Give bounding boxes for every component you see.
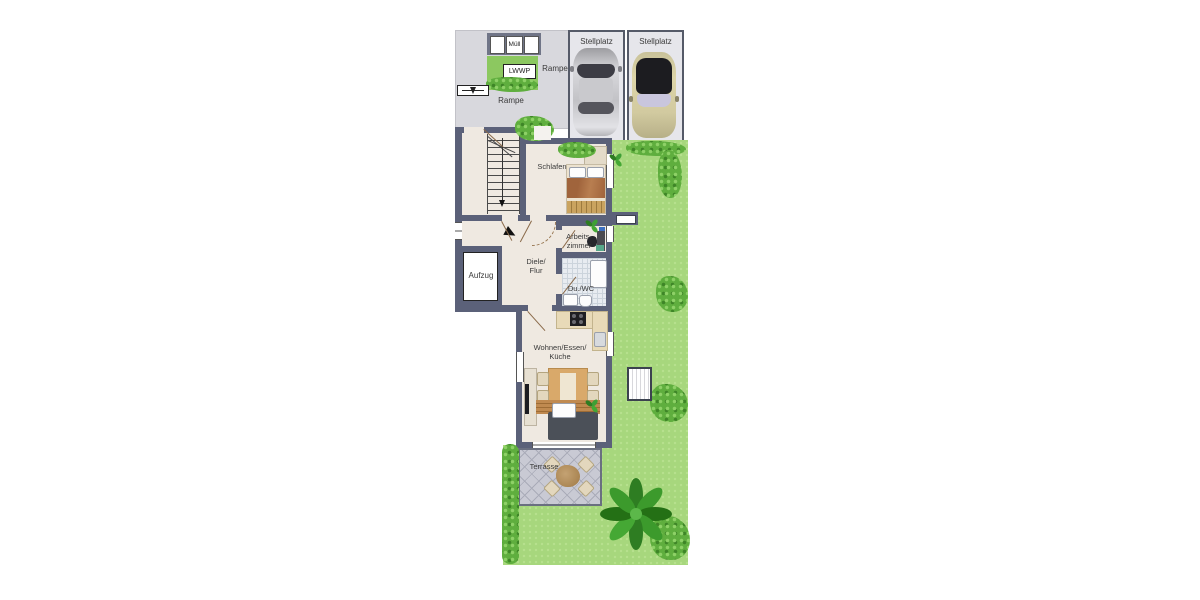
car-champagne-roof (636, 58, 672, 94)
staircase-arrow-icon (499, 200, 505, 207)
car-silver (573, 48, 619, 136)
bush-hedge-top-right (626, 141, 686, 156)
wall-stub-window (616, 215, 636, 224)
car-silver-roof (579, 78, 613, 102)
floor-plan-canvas: Müll LWWP Rampe Rampe Stellplatz Stellpl… (0, 0, 1200, 600)
terrasse-label: Terrasse (524, 463, 564, 472)
trash-bin-middle: Müll (506, 36, 523, 54)
car-champagne-mirror-left (629, 96, 633, 102)
ramp-slope-arrow-icon (470, 87, 476, 94)
rampe-upper-label: Rampe (540, 64, 570, 73)
car-silver-windshield (577, 64, 615, 78)
car-silver-rear-window (578, 102, 614, 114)
bush-right-lower (650, 384, 688, 422)
bush-below-stall1 (558, 142, 596, 158)
car-champagne-windshield (637, 94, 671, 107)
stellplatz-2-label: Stellplatz (627, 37, 684, 46)
terrace-door (532, 442, 596, 448)
window-wohnen-left (516, 352, 524, 382)
dining-chair-1 (537, 372, 549, 386)
arbeitszimmer-label-line2: zimmer (567, 241, 592, 250)
window-hall-left (455, 222, 462, 240)
car-silver-mirror-right (618, 66, 622, 72)
dining-chair-3 (587, 372, 599, 386)
stellplatz-1-label: Stellplatz (568, 37, 625, 46)
wohnen-label-line2: Küche (549, 352, 570, 361)
trash-bin-right (524, 36, 539, 54)
aufzug-label: Aufzug (463, 271, 499, 280)
coffee-table (552, 403, 576, 418)
plant-icon-3 (584, 398, 600, 414)
bed-footboard (567, 201, 605, 213)
bed-pillow-right (587, 167, 604, 178)
light-shaft (627, 367, 652, 401)
stove-burner-3 (572, 320, 576, 324)
opening-hall-wohnen (528, 305, 552, 311)
stove-burner-2 (579, 314, 583, 318)
car-champagne-mirror-right (675, 96, 679, 102)
toilet (579, 295, 592, 307)
dining-table-runner (560, 373, 576, 401)
schlafen-label: Schlafen (532, 163, 572, 172)
lwwp-label: LWWP (509, 68, 530, 75)
plant-icon-1 (608, 152, 624, 168)
stove (570, 312, 586, 326)
bush-lwwp-hedge (486, 77, 538, 92)
trash-bin-left (490, 36, 505, 54)
duwc-label: Du./WC (562, 285, 600, 294)
wohnen-label: Wohnen/Essen/ Küche (524, 344, 596, 361)
diele-label-line2: Flur (530, 266, 543, 275)
bed-blanket (567, 178, 605, 198)
ramp-slope-marker (457, 85, 489, 96)
opening-stairs-hall (502, 215, 518, 221)
plant-icon-2 (584, 218, 600, 234)
car-champagne (632, 52, 676, 138)
stove-burner-4 (579, 320, 583, 324)
planter-path (534, 126, 551, 140)
diele-flur-label: Diele/ Flur (518, 258, 554, 275)
bush-left-column (502, 444, 519, 564)
opening-hall-schlafen (530, 215, 546, 221)
bed (566, 164, 606, 214)
bathroom-sink (563, 294, 578, 306)
garden-palm-plant (600, 478, 672, 550)
bush-right-mid (656, 276, 688, 312)
window-arbeitszimmer-right (606, 226, 614, 242)
tv (525, 384, 529, 414)
entry-opening (464, 127, 484, 133)
muell-label: Müll (509, 41, 521, 48)
stove-burner-1 (572, 314, 576, 318)
car-silver-mirror-left (570, 66, 574, 72)
rampe-lower-label: Rampe (494, 96, 528, 105)
